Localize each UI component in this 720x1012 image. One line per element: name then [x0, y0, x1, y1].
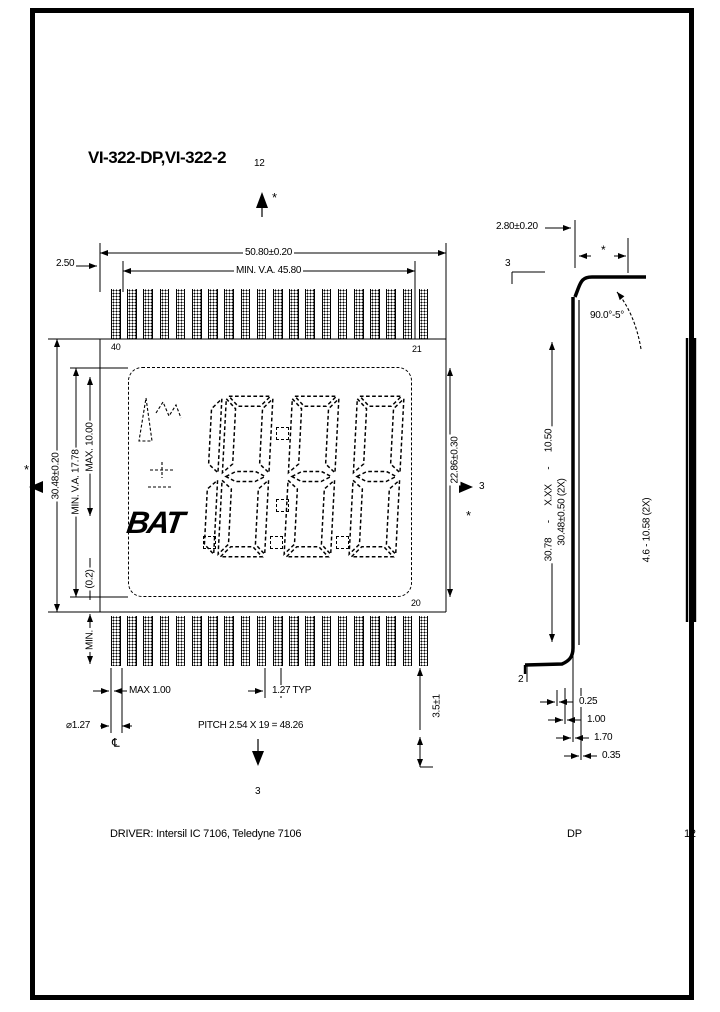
dim-pin-width-max: MAX 1.00	[127, 685, 173, 696]
lcd-pin	[224, 289, 234, 339]
colon-dot-upper	[276, 427, 289, 440]
bottom-arrow-icon	[252, 751, 264, 766]
lcd-pin	[386, 616, 396, 666]
dim-bend-angle: 90.0°-5°	[588, 310, 626, 321]
dim-overall-width: 50.80±0.20	[243, 247, 294, 258]
dim-digit-height: 22.86±0.30	[450, 435, 461, 486]
lcd-pin	[322, 616, 332, 666]
lcd-pin	[419, 289, 429, 339]
lcd-digit-8	[283, 395, 341, 558]
dim-detail-4: 0.35	[600, 750, 622, 761]
lcd-pin	[127, 616, 137, 666]
lcd-pin	[370, 616, 380, 666]
dim-height-with-pins: 30.78 - X.XX - 10.50	[544, 427, 555, 564]
lcd-pin	[224, 616, 234, 666]
bottom-mark-number: 3	[253, 786, 262, 797]
lcd-pin	[370, 289, 380, 339]
top-bent-pin	[575, 277, 646, 297]
lcd-pin	[273, 616, 283, 666]
datum-top: 3	[503, 258, 512, 269]
dim-detail-2: 1.00	[585, 714, 607, 725]
lcd-pin	[273, 289, 283, 339]
lcd-pin	[403, 289, 413, 339]
lcd-pin	[403, 616, 413, 666]
decimal-point-2	[270, 536, 283, 549]
lcd-pin	[176, 616, 186, 666]
lcd-pin	[241, 289, 251, 339]
pin-number-21: 21	[412, 344, 421, 354]
lcd-pin	[354, 289, 364, 339]
lcd-digit-1	[166, 395, 224, 558]
type-label: DP	[567, 828, 582, 840]
right-arrow-icon	[459, 481, 473, 493]
bottom-bent-pin	[525, 648, 573, 665]
lcd-pin	[208, 289, 218, 339]
dim-detail-1: 0.25	[577, 696, 599, 707]
top-mark-number: 12	[252, 158, 267, 169]
lcd-pin	[289, 616, 299, 666]
dim-right: 4.6 - 10.58 (2X)	[642, 496, 653, 565]
driver-note: DRIVER: Intersil IC 7106, Teledyne 7106	[110, 828, 301, 840]
pin-number-20: 20	[411, 598, 420, 608]
decimal-point-3	[336, 536, 349, 549]
lcd-pin	[127, 289, 137, 339]
dim-pin-dia: ⌀1.27	[64, 720, 92, 731]
right-mark-number: 3	[477, 481, 486, 492]
dim-pin-pitch-typ: 1.27 TYP	[270, 685, 313, 696]
dim-glass-height: 30.48±0.50 (2X)	[557, 476, 568, 547]
lcd-pin	[338, 289, 348, 339]
lcd-pin	[111, 289, 121, 339]
lcd-pin	[143, 616, 153, 666]
lcd-pin	[257, 616, 267, 666]
datasheet-drawing-page: VI-322-DP,VI-322-2 12 * 3 * 3 * 50.80±0.…	[0, 0, 720, 1012]
left-mark-star: *	[24, 462, 29, 477]
dim-end-margin: 2.50	[54, 258, 76, 269]
pin-number-40: 40	[111, 342, 120, 352]
dim-va-height: MIN. V.A. 17.78	[71, 447, 82, 516]
centerline-symbol: ℄	[110, 738, 121, 749]
dim-thickness: 2.80±0.20	[494, 221, 540, 232]
lcd-digit-8	[348, 395, 406, 558]
lcd-pin	[289, 289, 299, 339]
lcd-pin	[338, 616, 348, 666]
top-arrow-icon	[256, 192, 268, 208]
dim-pin-length: 3.5±1	[432, 692, 443, 719]
lcd-pin	[160, 289, 170, 339]
dim-min: MIN.	[85, 628, 96, 652]
lcd-pin	[111, 616, 121, 666]
lcd-pin	[305, 616, 315, 666]
page-number: 12	[684, 828, 696, 840]
lcd-pin	[241, 616, 251, 666]
dim-pitch-total: PITCH 2.54 X 19 = 48.26	[196, 720, 305, 731]
dim-max-height: MAX. 10.00	[85, 420, 96, 473]
right-mark-star: *	[466, 508, 471, 523]
lcd-pin	[354, 616, 364, 666]
lcd-pin	[322, 289, 332, 339]
dim-va-width: MIN. V.A. 45.80	[234, 265, 303, 276]
dim-detail-3: 1.70	[592, 732, 614, 743]
lcd-pin	[176, 289, 186, 339]
lcd-pin	[257, 289, 267, 339]
dim-overall-height: 30.48±0.20	[51, 451, 62, 502]
lcd-digit-8	[217, 395, 275, 558]
lcd-pin	[160, 616, 170, 666]
datum-bottom: 2	[516, 674, 525, 685]
lcd-pin	[419, 616, 429, 666]
lcd-pin	[192, 616, 202, 666]
part-number-title: VI-322-DP,VI-322-2	[88, 148, 226, 168]
left-arrow-icon	[29, 481, 43, 493]
dim-paren: (0.2)	[85, 567, 96, 590]
lcd-pin	[208, 616, 218, 666]
top-mark-star: *	[272, 190, 277, 205]
dim-star: *	[599, 245, 607, 256]
lcd-pin	[305, 289, 315, 339]
lcd-pin	[143, 289, 153, 339]
lcd-pin	[192, 289, 202, 339]
lcd-pin	[386, 289, 396, 339]
